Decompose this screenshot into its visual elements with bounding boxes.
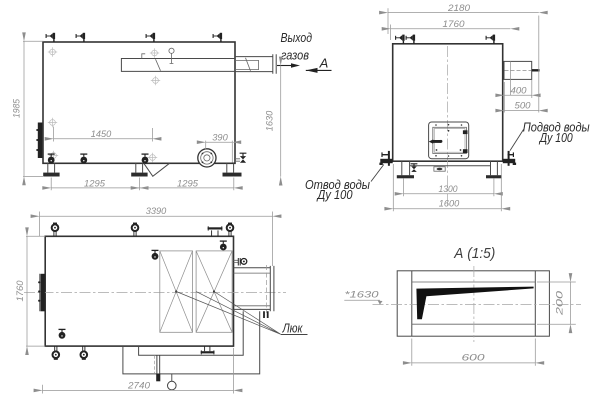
svg-text:1760: 1760 [443, 19, 466, 30]
svg-text:390: 390 [212, 132, 228, 143]
svg-text:Выход: Выход [281, 30, 313, 45]
svg-text:200: 200 [555, 290, 566, 317]
svg-text:1450: 1450 [91, 129, 112, 140]
svg-text:1295: 1295 [177, 179, 199, 190]
svg-text:1985: 1985 [12, 98, 23, 118]
svg-text:3390: 3390 [146, 206, 167, 217]
svg-text:1630: 1630 [265, 110, 276, 131]
svg-text:газов: газов [281, 47, 309, 62]
svg-text:400: 400 [511, 85, 528, 96]
svg-text:Люк: Люк [282, 320, 303, 335]
svg-text:1600: 1600 [439, 199, 460, 210]
svg-text:А (1:5): А (1:5) [453, 246, 495, 262]
svg-text:Ду 100: Ду 100 [316, 187, 353, 202]
svg-text:600: 600 [462, 352, 486, 363]
svg-text:500: 500 [515, 101, 532, 112]
svg-text:1295: 1295 [84, 179, 106, 190]
svg-text:1300: 1300 [439, 184, 459, 195]
svg-text:2180: 2180 [447, 3, 471, 14]
svg-text:Ду 100: Ду 100 [538, 130, 573, 145]
svg-text:1760: 1760 [15, 280, 26, 302]
svg-text:2740: 2740 [127, 381, 151, 392]
svg-text:А: А [319, 56, 329, 71]
svg-text:*1630: *1630 [345, 290, 380, 301]
